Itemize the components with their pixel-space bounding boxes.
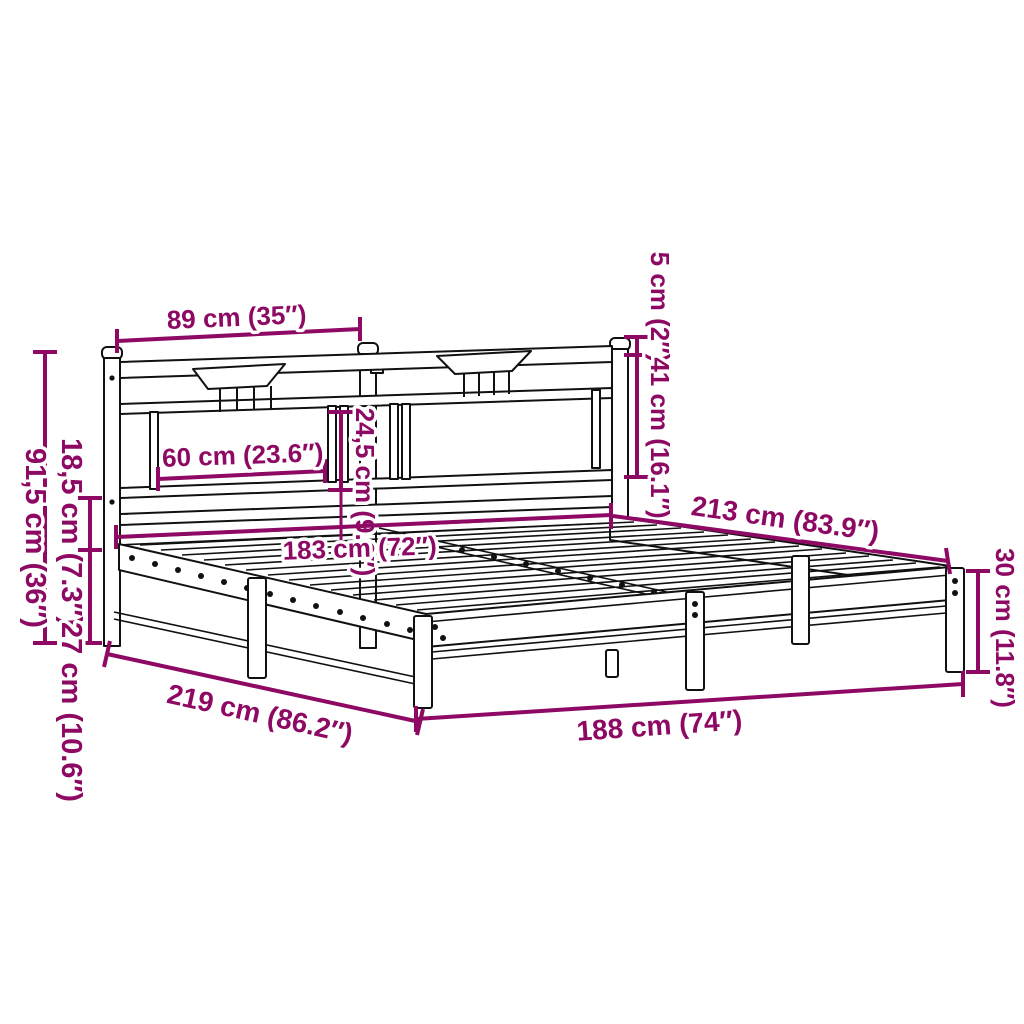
dimension-frame-side-height-label: 30 cm (11.8″) — [990, 548, 1020, 708]
dimension-frame-to-floor-label: 27 cm (10.6″) — [55, 622, 87, 802]
dimension-post-cap-height-label: 5 cm (2″) — [645, 252, 675, 363]
dimension-outer-width-label: 188 cm (74″) — [575, 704, 743, 747]
dimension-rail-and-frame-heights: 18,5 cm (7.3″) 27 cm (10.6″) — [55, 438, 102, 802]
dimension-frame-side-height: 30 cm (11.8″) — [966, 548, 1020, 708]
left-mid-leg — [248, 578, 266, 678]
center-foot-leg — [606, 650, 618, 677]
diagram-canvas: 89 cm (35″) 5 cm (2″) 41 cm (16.1″) 24,5… — [0, 0, 1024, 1024]
dimension-headboard-height: 91,5 cm (36″) — [19, 352, 57, 643]
dimension-headboard-height-label: 91,5 cm (36″) — [19, 448, 51, 628]
dimension-post-cap-and-headboard-top: 5 cm (2″) 41 cm (16.1″) — [624, 252, 675, 519]
foot-center-leg — [686, 592, 704, 690]
right-mid-leg — [792, 556, 809, 644]
dimension-headboard-section-width-label: 89 cm (35″) — [166, 299, 307, 335]
bed-frame-dimension-diagram: 89 cm (35″) 5 cm (2″) 41 cm (16.1″) 24,5… — [0, 0, 1024, 1024]
foot-left-leg — [414, 616, 432, 708]
dimension-rail-to-frame-label: 18,5 cm (7.3″) — [55, 438, 87, 626]
foot-right-leg — [946, 568, 964, 672]
dimension-headboard-top-to-rail-label: 41 cm (16.1″) — [645, 357, 675, 518]
dimension-inner-width-label: 183 cm (72″) — [282, 530, 437, 565]
headboard-right-post — [612, 349, 628, 518]
dimension-headboard-section-width: 89 cm (35″) — [117, 299, 360, 353]
dimension-panel-width-label: 60 cm (23.6″) — [162, 437, 324, 473]
